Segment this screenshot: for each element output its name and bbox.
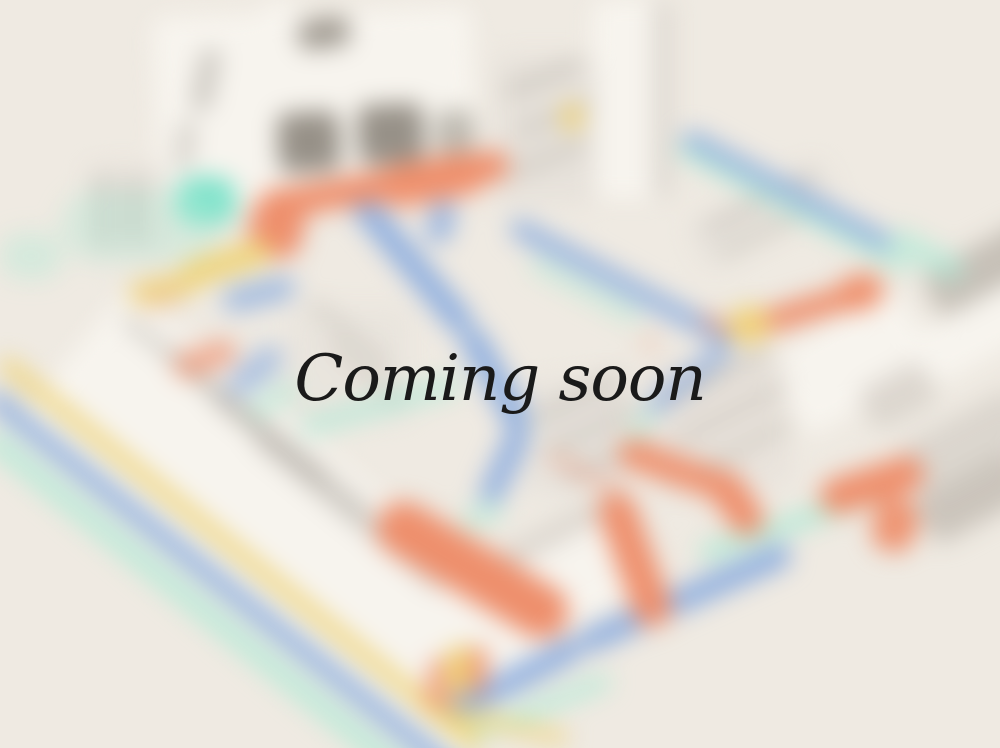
coming-soon-heading: Coming soon (294, 342, 705, 416)
overlay: Coming soon (0, 0, 1000, 748)
coming-soon-page: Coming soon (0, 0, 1000, 748)
